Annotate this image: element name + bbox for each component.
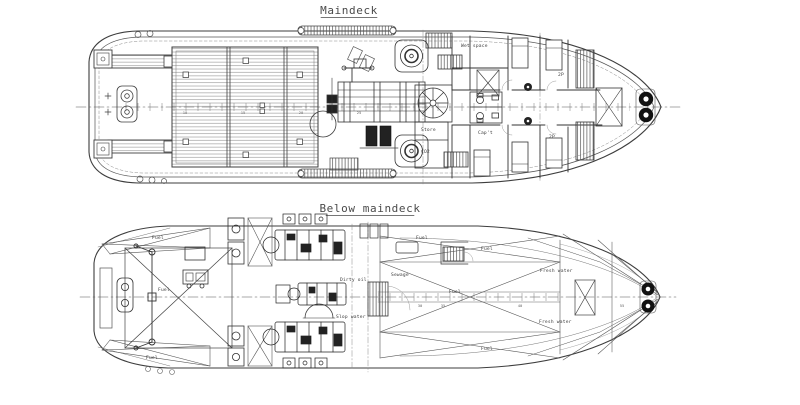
cabin-2p-label: 2P [558,72,564,78]
below-frame-number: 30 [418,303,423,308]
chain-locker [575,280,595,315]
co2-room-label: CO2 [421,149,430,155]
main-engine-port [263,214,345,260]
below-maindeck-plan: Below maindeck 30 35 40 55 Fuel Fuel [80,202,676,375]
deck-hatch-small [330,158,358,170]
below-maindeck-title: Below maindeck [319,202,420,215]
maindeck-planked-hatch [172,47,318,167]
below-frame-curve [400,238,655,295]
below-frame-ticks [378,293,560,301]
gangway-plank-starboard [298,169,396,178]
generator-set [276,283,346,305]
shaft-tunnel-arch [305,304,333,318]
fuel-tank-label: Fuel [481,246,493,252]
fuel-tank-label: Fuel [449,289,461,295]
wet-space-label: Wet space [461,43,488,49]
wc-bowl-icon [527,86,530,89]
main-engine-starboard [263,322,345,368]
dirty-oil-label: Dirty oil [340,277,367,283]
general-arrangement-sheet: Maindeck 10 15 20 25 [0,0,800,405]
aft-hold-x-braced [125,248,232,348]
fuel-tank-label: Fuel [481,346,493,352]
gangway-plank-port [298,26,396,35]
slop-water-label: Slop water [336,314,366,320]
fresh-water-label: Fresh water [540,268,573,274]
cabin-2p-label: 2P [549,134,555,140]
day-tank-x [248,218,272,366]
wc-bowl-icon [527,120,530,123]
fuel-tank-label: Fuel [416,235,428,241]
store-room-label: Store [421,127,436,133]
maindeck-plan: Maindeck 10 15 20 25 [76,4,680,184]
ship-general-arrangement-drawing: Maindeck 10 15 20 25 [0,0,800,405]
below-frame-curve [400,299,655,356]
small-tank-boxes [360,224,418,253]
captain-cabin-label: Cap't [478,130,493,136]
trawl-winch [327,59,425,122]
maindeck-title: Maindeck [320,4,378,17]
sewage-label: Sewage [391,272,409,278]
fuel-tank-label: Fuel [146,355,158,361]
rudder-trunk [100,268,112,328]
fresh-water-label: Fresh water [539,319,572,325]
pump-stack [228,218,244,366]
fuel-tank-label: Fuel [158,287,170,293]
fairlead-box [94,50,112,158]
below-frame-number: 40 [518,303,523,308]
below-frame-number: 55 [620,303,625,308]
fuel-tank-label: Fuel [152,235,164,241]
winch-guide-rollers [360,126,398,148]
